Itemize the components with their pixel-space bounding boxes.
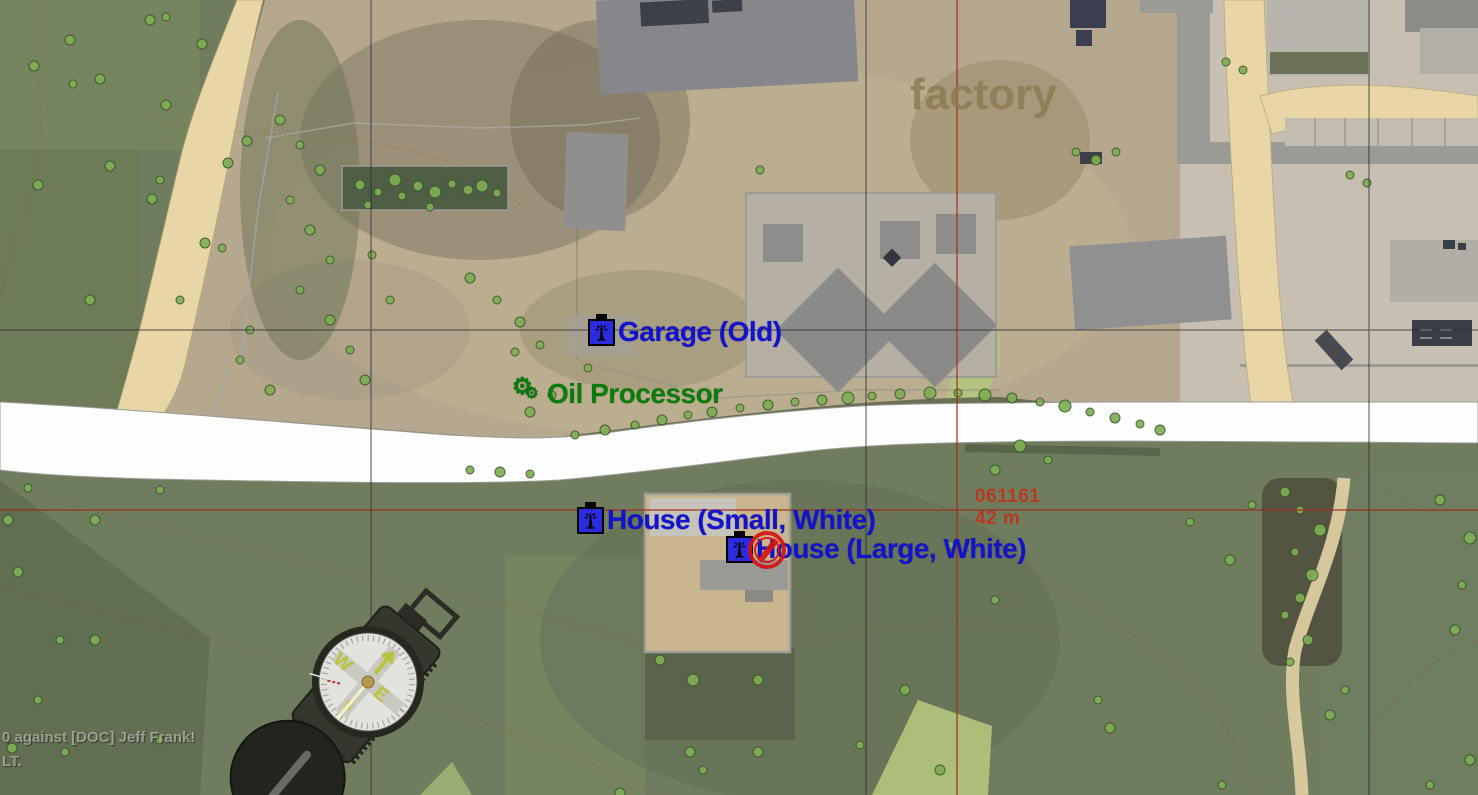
- no-entry-icon[interactable]: [748, 531, 786, 569]
- notification-line: 0 against [DOC] Jeff Frank!: [2, 726, 195, 750]
- map-canvas[interactable]: [0, 0, 1478, 795]
- marker-label: Oil Processor: [547, 380, 723, 408]
- marker-garage-old[interactable]: Garage (Old): [588, 318, 782, 346]
- game-map-view[interactable]: factory Garage (Old) ⚙⚙ Oil Processor Ho…: [0, 0, 1478, 795]
- notification-feed: 0 against [DOC] Jeff Frank! LT.: [2, 726, 195, 774]
- marker-label: Garage (Old): [618, 318, 782, 346]
- house-marker-icon: [577, 507, 604, 534]
- cursor-readout: 061161 42 m: [975, 486, 1040, 530]
- marker-oil-processor[interactable]: ⚙⚙ Oil Processor: [512, 379, 723, 409]
- marker-house-small-white[interactable]: House (Small, White): [577, 506, 875, 534]
- elevation: 42 m: [975, 508, 1040, 530]
- gears-icon: ⚙⚙: [512, 379, 544, 409]
- marker-label: House (Large, White): [756, 535, 1026, 563]
- area-name-label: factory: [910, 70, 1057, 120]
- notification-line: LT.: [2, 750, 195, 774]
- house-marker-icon: [588, 319, 615, 346]
- grid-reference: 061161: [975, 486, 1040, 508]
